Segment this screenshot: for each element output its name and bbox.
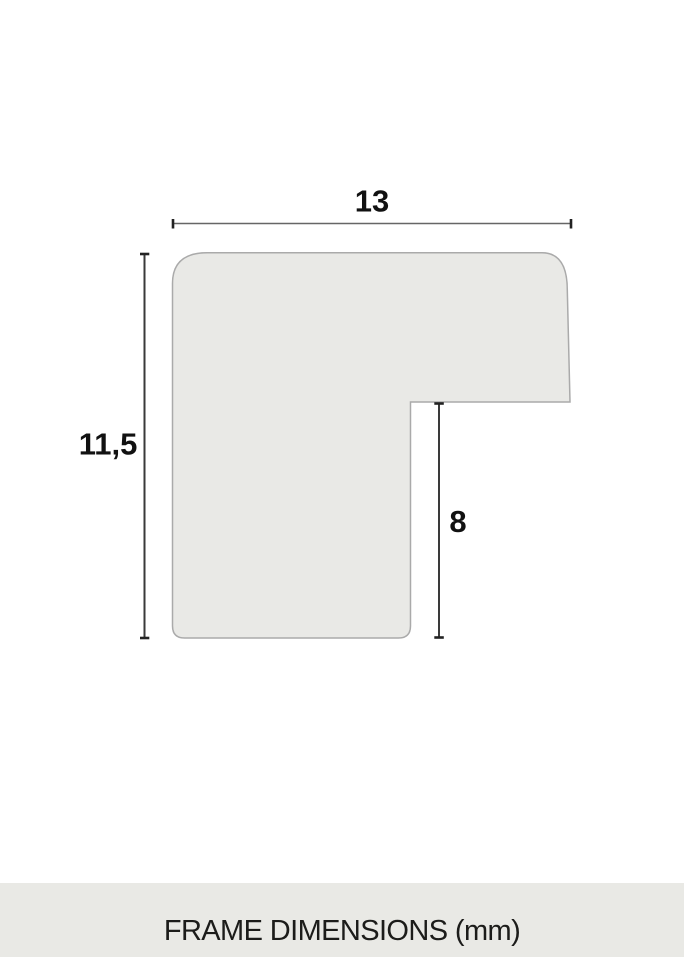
svg-text:11,5: 11,5 bbox=[79, 427, 138, 462]
svg-text:13: 13 bbox=[355, 184, 389, 219]
svg-text:8: 8 bbox=[449, 504, 466, 539]
